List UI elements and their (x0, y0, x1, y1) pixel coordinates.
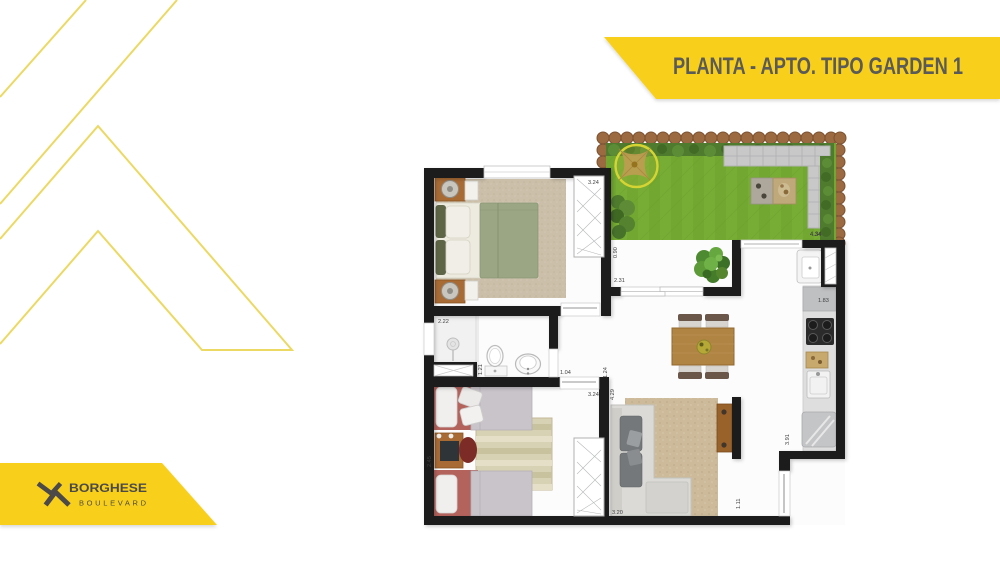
svg-text:2.22: 2.22 (438, 319, 449, 325)
svg-text:2.45: 2.45 (427, 456, 433, 467)
svg-text:BOULEVARD: BOULEVARD (79, 499, 147, 508)
svg-text:3.24: 3.24 (588, 392, 599, 398)
svg-text:1.24: 1.24 (603, 367, 609, 378)
svg-text:4.34: 4.34 (810, 232, 821, 238)
svg-text:0.90: 0.90 (613, 247, 619, 258)
svg-text:3.91: 3.91 (785, 434, 791, 445)
svg-text:4.29: 4.29 (610, 389, 616, 400)
svg-text:1.04: 1.04 (560, 370, 571, 376)
svg-text:2.31: 2.31 (614, 278, 625, 284)
svg-text:1.11: 1.11 (736, 499, 742, 509)
svg-text:3.24: 3.24 (588, 180, 599, 186)
svg-text:3.20: 3.20 (612, 510, 623, 516)
svg-text:1.21: 1.21 (478, 364, 484, 375)
svg-text:PLANTA - APTO. TIPO GARDEN 1: PLANTA - APTO. TIPO GARDEN 1 (673, 53, 963, 80)
svg-text:1.83: 1.83 (818, 298, 829, 304)
svg-text:BORGHESE: BORGHESE (69, 483, 147, 495)
